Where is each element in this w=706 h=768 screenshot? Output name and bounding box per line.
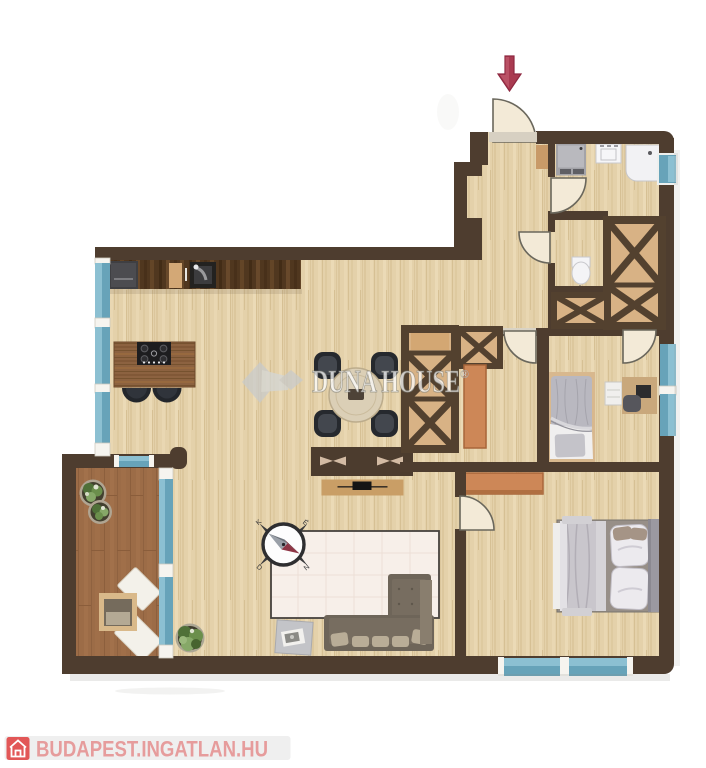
- svg-text:BUDAPEST.INGATLAN.HU: BUDAPEST.INGATLAN.HU: [36, 737, 268, 762]
- svg-text:DUNA HOUSE: DUNA HOUSE: [312, 363, 460, 399]
- svg-text:®: ®: [460, 367, 469, 381]
